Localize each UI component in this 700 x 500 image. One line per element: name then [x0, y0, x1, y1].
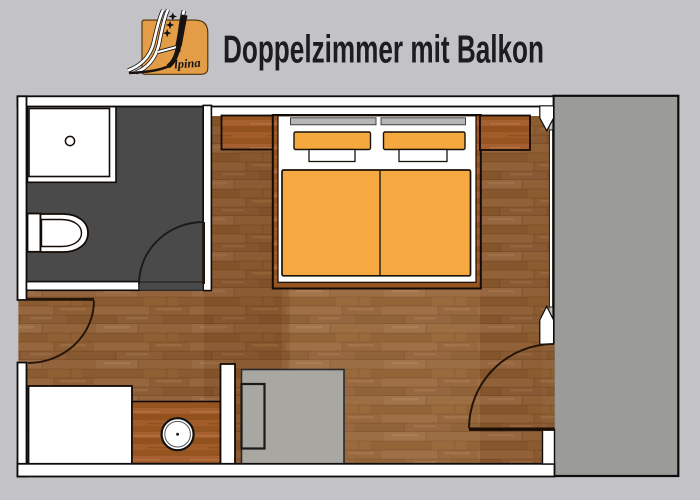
svg-text:lpina: lpina: [174, 56, 201, 72]
svg-text:Doppelzimmer mit Balkon: Doppelzimmer mit Balkon: [223, 29, 544, 72]
